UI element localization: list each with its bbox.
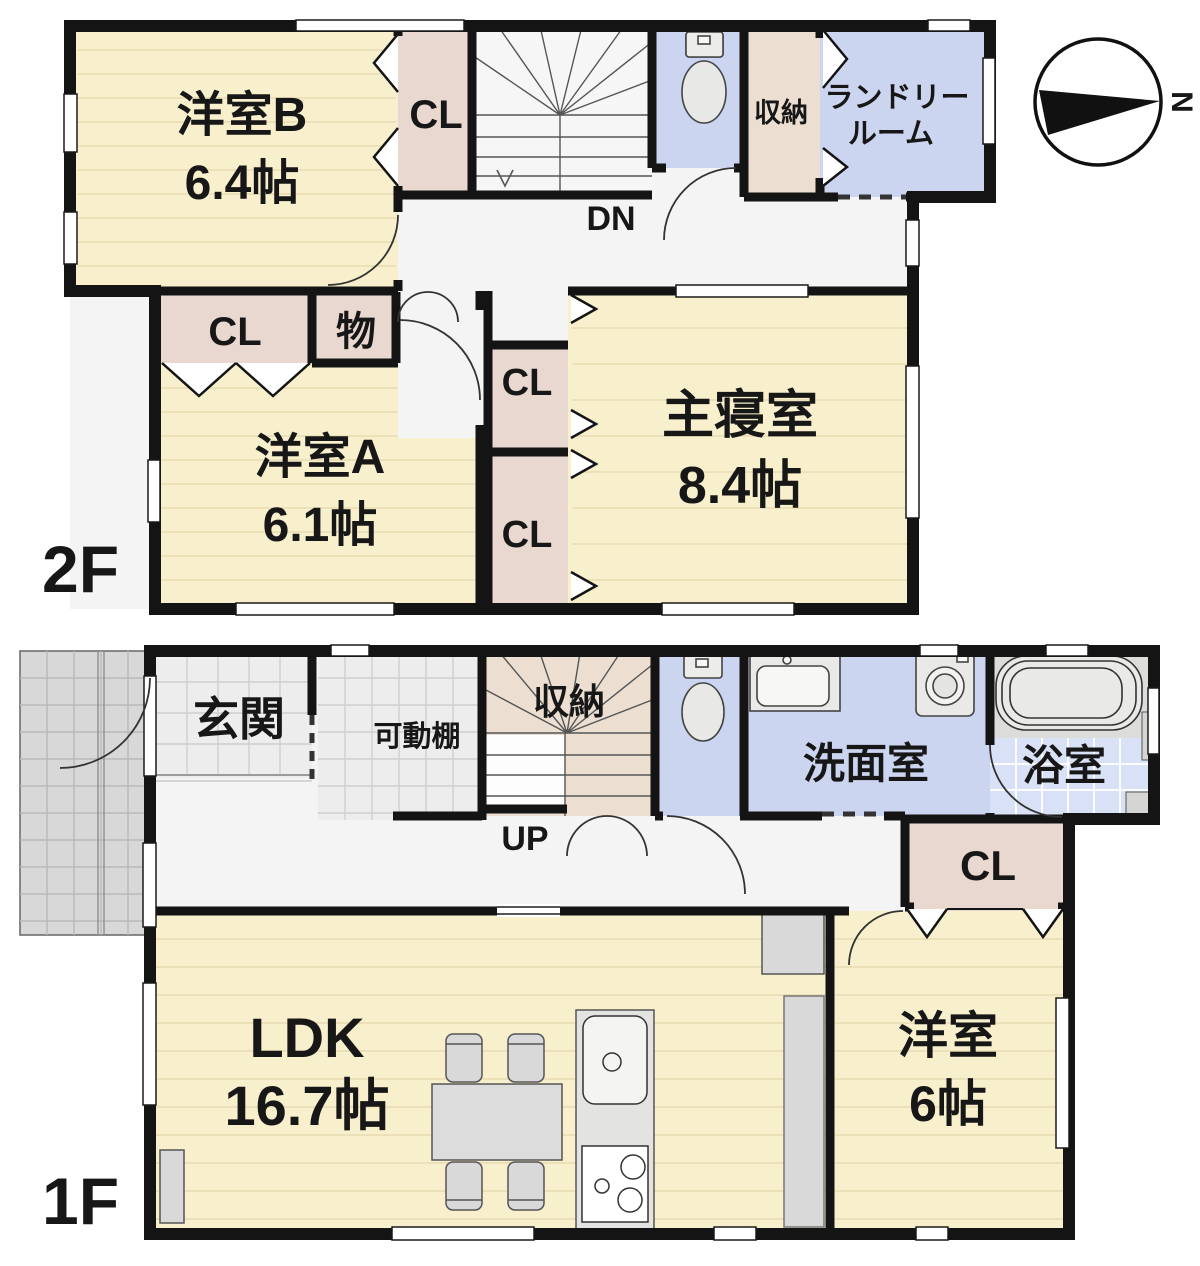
label-laundry-2: ルーム	[848, 118, 934, 150]
label-washroom: 洗面室	[803, 740, 929, 787]
label-1f: 1F	[42, 1164, 119, 1238]
floor-plan-svg: 洋室B 6.4帖 CL DN 収納 ランドリー ルーム CL 物 洋室A 6.1…	[0, 0, 1200, 1266]
floor-1f: 玄関 可動棚 収納 UP 洗面室 浴室 CL LDK 16.7帖 洋室 6帖 1…	[20, 645, 1159, 1240]
compass: N	[1035, 39, 1198, 165]
label-bathroom: 浴室	[1022, 742, 1106, 789]
label-up: UP	[501, 820, 548, 858]
ldk-sliding-door	[497, 904, 560, 917]
label-closet-mid-lower: CL	[502, 514, 553, 556]
room-storage-1f	[482, 651, 655, 816]
kitchen-unit	[576, 1010, 654, 1230]
label-yoshitsu-1f-size: 6帖	[909, 1076, 987, 1132]
bath-stool	[1126, 792, 1150, 814]
room-toilet-1f	[655, 651, 744, 816]
room-master	[568, 292, 913, 609]
label-yoshitsu-a: 洋室A	[255, 431, 386, 484]
bathtub-icon	[996, 656, 1142, 730]
label-yoshitsu-a-size: 6.1帖	[263, 499, 378, 552]
floor-2f: 洋室B 6.4帖 CL DN 収納 ランドリー ルーム CL 物 洋室A 6.1…	[42, 20, 995, 615]
tv-board	[160, 1150, 184, 1223]
label-master: 主寝室	[662, 387, 818, 445]
room-bathroom	[990, 651, 1154, 819]
kitchen-cupboard	[784, 996, 824, 1227]
room-ldk	[150, 911, 833, 1234]
refrigerator	[762, 910, 824, 974]
label-entrance: 玄関	[193, 693, 285, 745]
label-laundry-1: ランドリー	[824, 82, 969, 114]
toilet-1f-icon	[682, 655, 724, 741]
label-dn: DN	[586, 200, 635, 238]
sink-icon	[750, 653, 840, 711]
label-yoshitsu-b: 洋室B	[177, 89, 308, 142]
label-ldk: LDK	[249, 1006, 364, 1069]
label-storage-1f: 収納	[533, 681, 605, 722]
room-yoshitsu-1f	[833, 911, 1069, 1234]
label-storage-2f: 収納	[754, 97, 808, 128]
label-2f: 2F	[42, 532, 119, 606]
label-mono: 物	[336, 310, 376, 354]
label-movable-shelf: 可動棚	[373, 720, 460, 753]
washing-machine-icon	[916, 650, 974, 716]
label-closet-b: CL	[409, 93, 462, 137]
label-yoshitsu-b-size: 6.4帖	[185, 157, 300, 210]
room-washroom	[744, 650, 990, 816]
label-ldk-size: 16.7帖	[225, 1074, 390, 1137]
label-closet-1f: CL	[960, 842, 1016, 889]
floor-plan-page: 洋室B 6.4帖 CL DN 収納 ランドリー ルーム CL 物 洋室A 6.1…	[0, 0, 1200, 1266]
compass-north-label: N	[1165, 91, 1198, 113]
stairs-2f-floor	[472, 26, 652, 195]
label-closet-mid-upper: CL	[502, 362, 553, 404]
label-closet-a: CL	[208, 310, 261, 354]
toilet-2f-icon	[682, 32, 726, 123]
label-master-size: 8.4帖	[678, 457, 802, 515]
label-yoshitsu-1f: 洋室	[898, 1008, 998, 1064]
porch	[20, 651, 150, 935]
